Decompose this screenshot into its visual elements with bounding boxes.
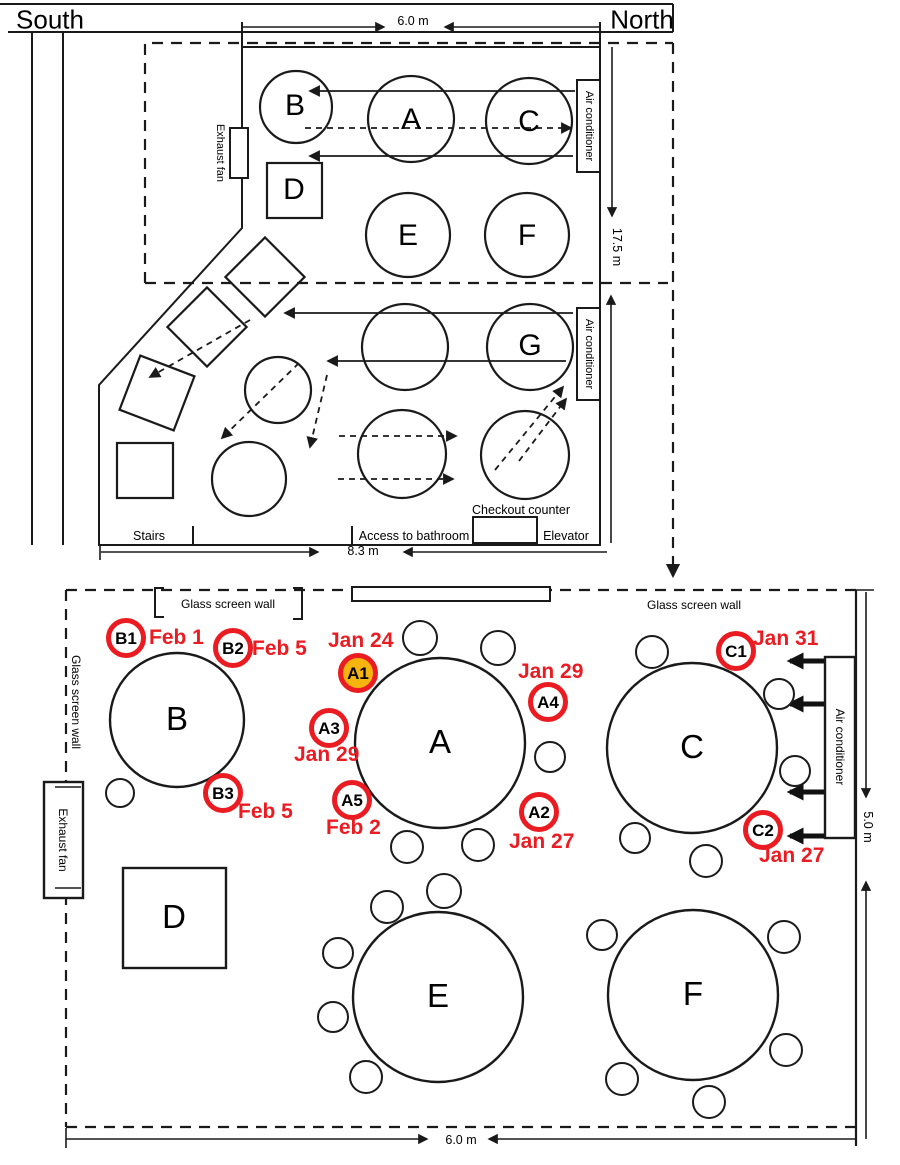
dim-6m-top: 6.0 m xyxy=(397,14,428,28)
upper-ac2-label: Air conditioner xyxy=(583,319,595,389)
upper-ac1-label: Air conditioner xyxy=(583,91,595,161)
floor-plan-figure: South North 6.0 m 17.5 m 8.3 m Exhaust f… xyxy=(0,0,900,1165)
lower-ac-label: Air conditioner xyxy=(833,709,847,786)
seat-B1: B1 xyxy=(106,618,146,658)
lower-table-e-label: E xyxy=(427,977,449,1015)
lower-exhaust-fan-label: Exhaust fan xyxy=(56,808,70,871)
date-A2: Jan 27 xyxy=(509,831,574,852)
checkout-counter-label: Checkout counter xyxy=(472,503,570,517)
dim-8-3m: 8.3 m xyxy=(347,544,378,558)
seat-A1-index-case: A1 xyxy=(338,653,378,693)
diamond-table xyxy=(120,356,195,431)
date-A5: Feb 2 xyxy=(326,817,381,838)
square-table xyxy=(117,443,173,498)
line-art xyxy=(0,0,900,1165)
date-A3: Jan 29 xyxy=(294,744,359,765)
checkout-counter-box xyxy=(473,517,537,543)
upper-table-b-label: B xyxy=(285,89,305,123)
upper-exhaust-fan-box xyxy=(230,128,248,178)
glass-wall-top-label: Glass screen wall xyxy=(181,597,275,611)
ac-airflow-arrows xyxy=(790,661,824,836)
lower-table-a-label: A xyxy=(429,723,451,761)
stairs-label: Stairs xyxy=(133,529,165,543)
upper-table-c-label: C xyxy=(518,105,540,139)
bathroom-label: Access to bathroom xyxy=(359,529,469,543)
date-A4: Jan 29 xyxy=(518,661,583,682)
lower-table-c-label: C xyxy=(680,728,704,766)
seat-C1: C1 xyxy=(716,631,756,671)
south-label: South xyxy=(16,5,84,36)
date-C1: Jan 31 xyxy=(753,628,818,649)
diamond-table xyxy=(167,287,246,366)
seat-B3: B3 xyxy=(203,773,243,813)
diamond-table xyxy=(225,237,304,316)
date-A1: Jan 24 xyxy=(328,630,393,651)
glass-wall-left-label: Glass screen wall xyxy=(69,655,83,749)
upper-table-a-label: A xyxy=(401,103,421,137)
elevator-label: Elevator xyxy=(543,529,589,543)
lower-detail-plan xyxy=(44,587,874,1148)
date-C2: Jan 27 xyxy=(759,845,824,866)
lower-table-b-label: B xyxy=(166,700,188,738)
seat-B2: B2 xyxy=(213,628,253,668)
upper-table-g-label: G xyxy=(518,329,541,363)
upper-tables xyxy=(117,71,573,516)
seat-A5: A5 xyxy=(332,780,372,820)
door-ticks xyxy=(193,526,352,545)
dim-17-5m: 17.5 m xyxy=(610,228,624,266)
lower-table-f-label: F xyxy=(683,975,703,1013)
upper-floor-plan xyxy=(0,4,673,576)
seat-A3: A3 xyxy=(309,708,349,748)
date-B1: Feb 1 xyxy=(149,627,204,648)
lower-table-d-label: D xyxy=(162,898,186,936)
glass-screen-panel xyxy=(352,587,550,601)
seat-A4: A4 xyxy=(528,682,568,722)
upper-exhaust-fan-label: Exhaust fan xyxy=(214,124,226,182)
upper-table-d-label: D xyxy=(283,173,305,207)
upper-table-f-label: F xyxy=(518,219,536,253)
north-label: North xyxy=(610,5,674,36)
seat-A2: A2 xyxy=(519,792,559,832)
dim-6m-bottom: 6.0 m xyxy=(445,1133,476,1147)
date-B2: Feb 5 xyxy=(252,638,307,659)
dim-5m: 5.0 m xyxy=(861,811,875,842)
glass-wall-right-label: Glass screen wall xyxy=(647,598,741,612)
lower-tables xyxy=(110,653,778,1082)
date-B3: Feb 5 xyxy=(238,801,293,822)
upper-table-e-label: E xyxy=(398,219,418,253)
outer-walls xyxy=(0,4,673,545)
